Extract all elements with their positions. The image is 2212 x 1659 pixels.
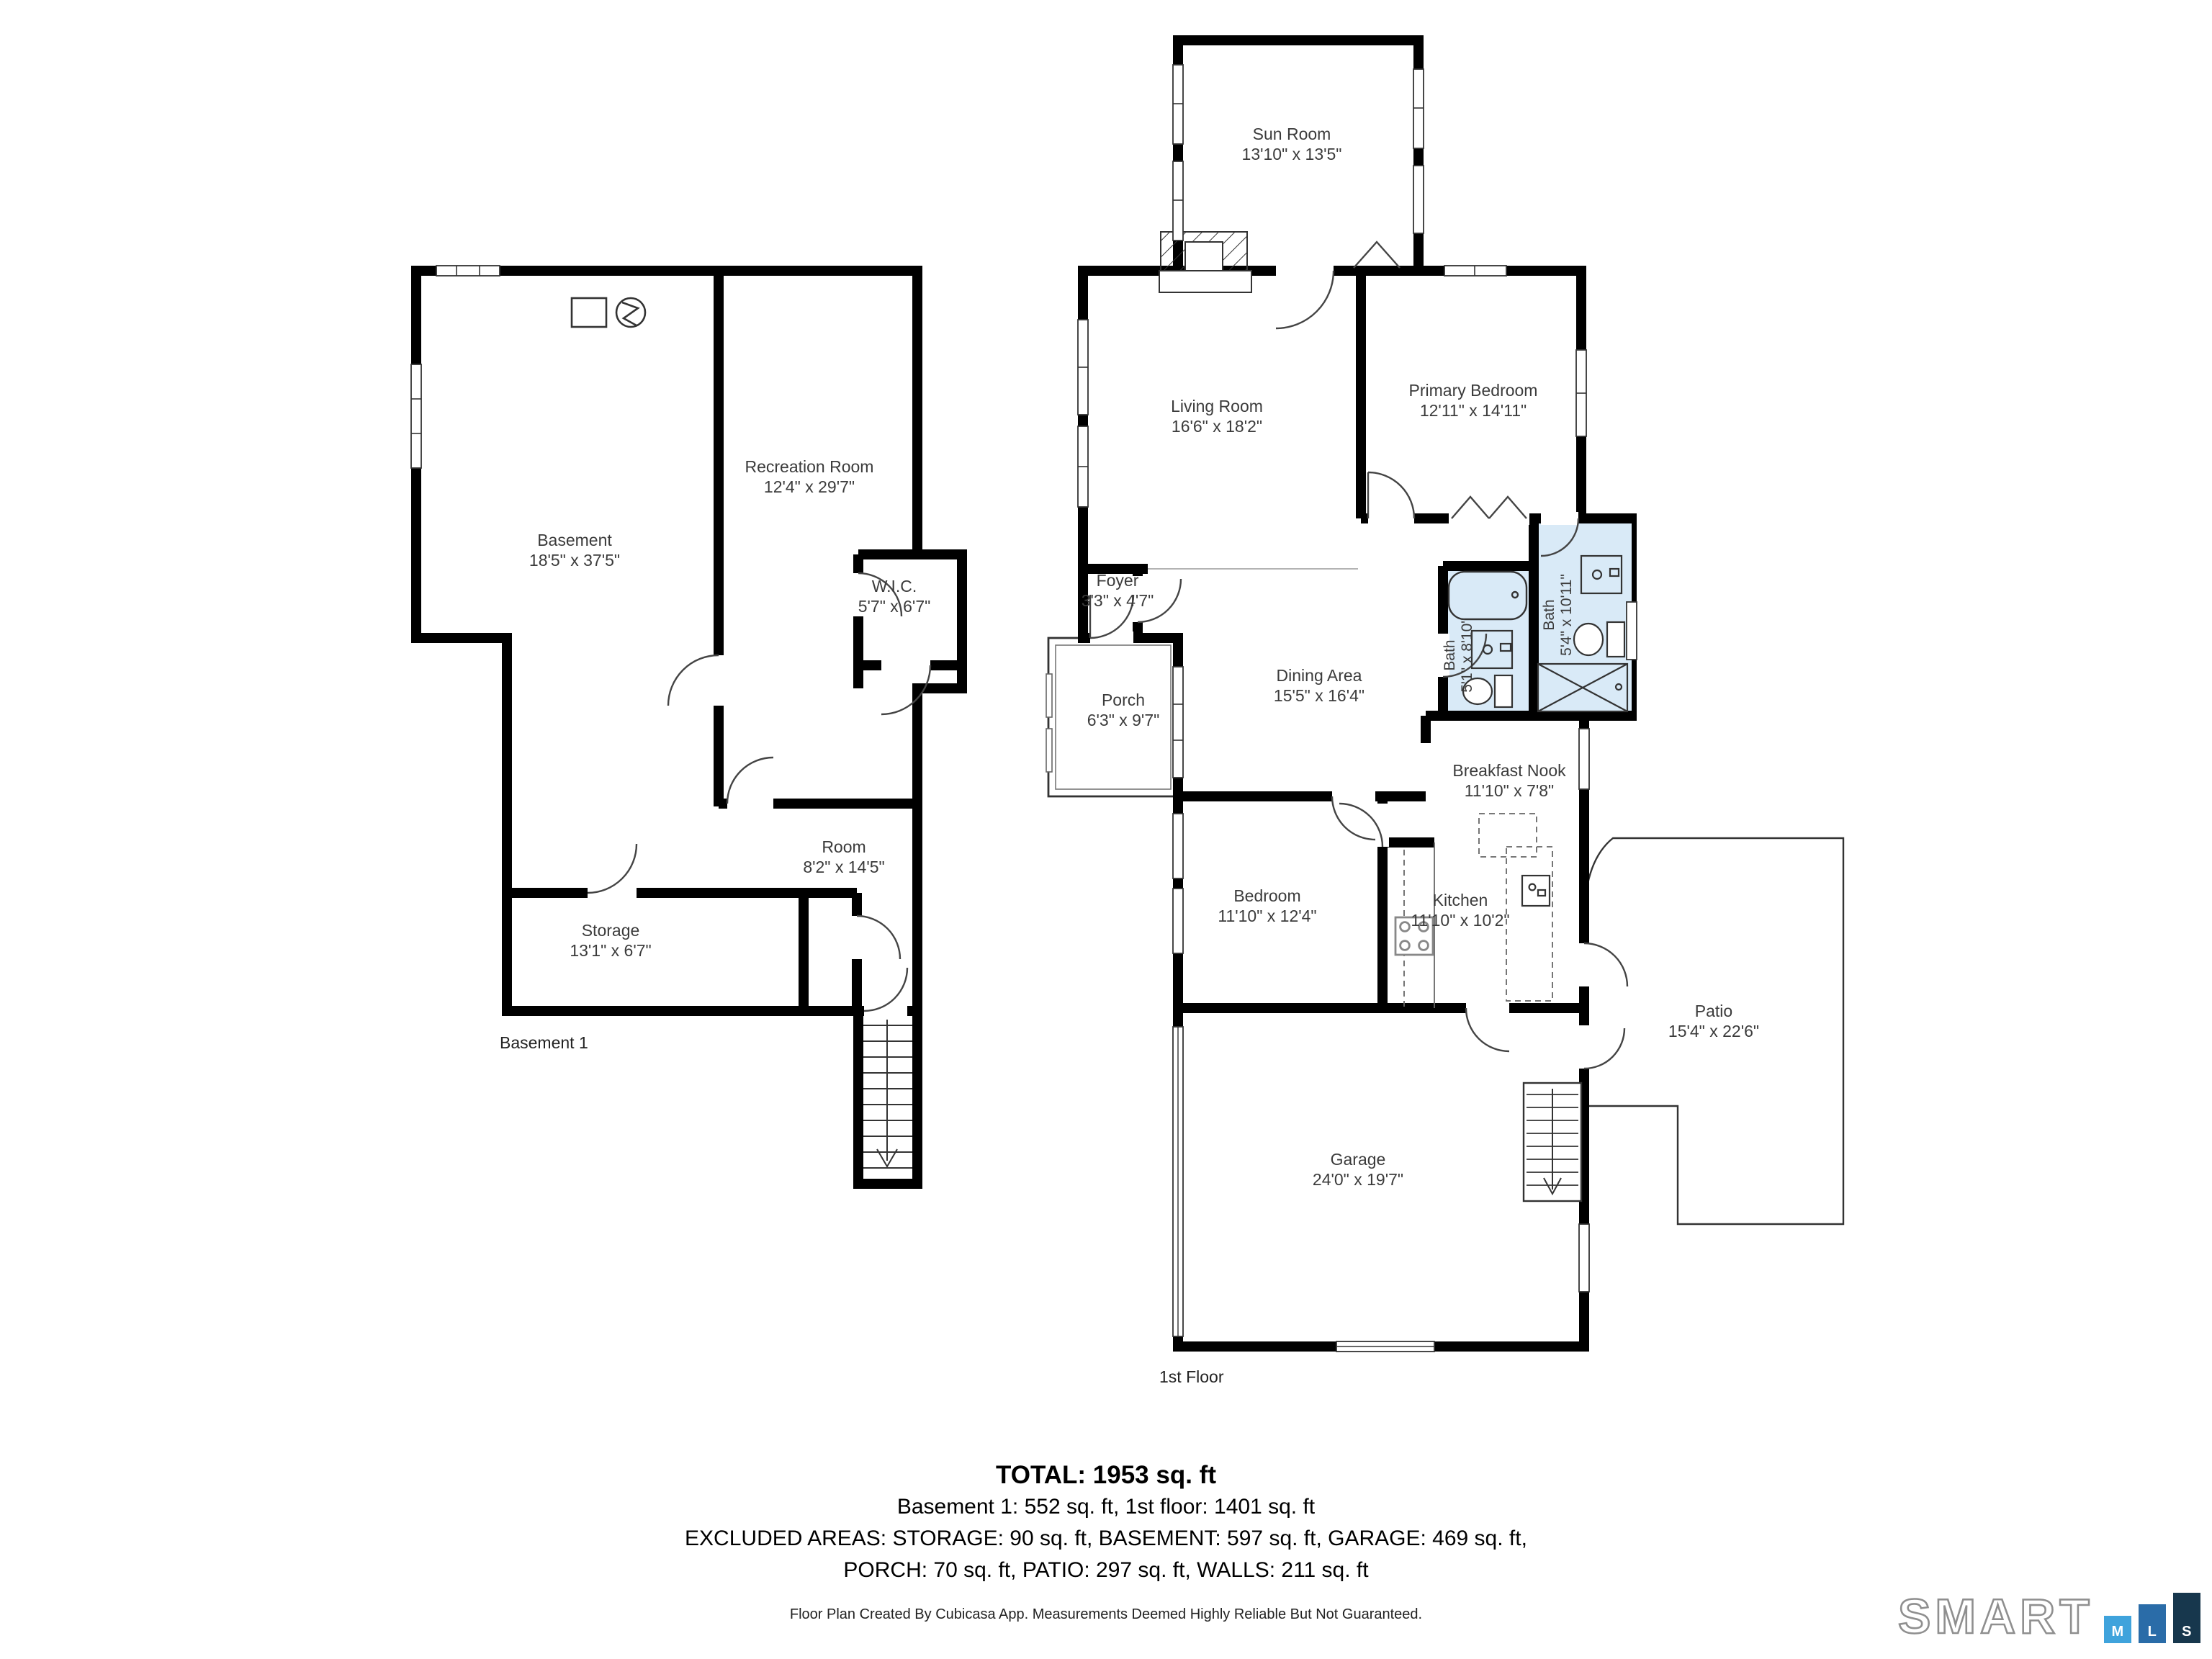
room-label-primary-bedroom: Primary Bedroom 12'11" x 14'11" <box>1358 383 1588 422</box>
room-dims: 5'4" x 10'11" <box>1558 546 1575 684</box>
mls-logo-bars: M L S <box>2104 1593 2200 1643</box>
smartmls-logo: SMART M L S <box>1898 1591 2200 1643</box>
room-dims: 3'3" x 4'7" <box>1046 593 1190 612</box>
room-label-bedroom: Bedroom 11'10" x 12'4" <box>1152 889 1382 927</box>
room-dims: 13'10" x 13'5" <box>1177 146 1407 166</box>
room-label-foyer: Foyer 3'3" x 4'7" <box>1046 573 1190 612</box>
room-label-bath-1: Bath 5'1" x 8'10" <box>1442 590 1476 720</box>
room-label-porch: Porch 6'3" x 9'7" <box>1037 693 1210 732</box>
room-dims: 15'5" x 16'4" <box>1204 688 1434 707</box>
floor-label-basement-1: Basement 1 <box>500 1035 588 1053</box>
room-name: Room <box>772 840 916 859</box>
room-dims: 15'4" x 22'6" <box>1599 1023 1829 1043</box>
room-dims: 11'10" x 10'2" <box>1374 912 1547 932</box>
room-dims: 8'2" x 14'5" <box>772 859 916 878</box>
room-label-patio: Patio 15'4" x 22'6" <box>1599 1004 1829 1043</box>
floor-areas-text: Basement 1: 552 sq. ft, 1st floor: 1401 … <box>0 1495 2212 1519</box>
room-name: Primary Bedroom <box>1358 383 1588 403</box>
room-name: Living Room <box>1102 399 1332 418</box>
floor-plan-page: Basement 18'5" x 37'5" Recreation Room 1… <box>0 0 2212 1659</box>
room-label-kitchen: Kitchen 11'10" x 10'2" <box>1374 893 1547 932</box>
room-label-sun-room: Sun Room 13'10" x 13'5" <box>1177 127 1407 166</box>
room-label-breakfast-nook: Breakfast Nook 11'10" x 7'8" <box>1394 763 1624 802</box>
room-name: Garage <box>1243 1152 1473 1172</box>
room-label-garage: Garage 24'0" x 19'7" <box>1243 1152 1473 1191</box>
room-name: Sun Room <box>1177 127 1407 146</box>
room-name: Dining Area <box>1204 668 1434 688</box>
room-name: Bath <box>1442 590 1459 720</box>
room-name: Patio <box>1599 1004 1829 1023</box>
room-dims: 12'4" x 29'7" <box>694 479 925 498</box>
mls-bar-s: S <box>2173 1593 2200 1643</box>
room-label-bath-2: Bath 5'4" x 10'11" <box>1541 546 1575 684</box>
room-label-dining-area: Dining Area 15'5" x 16'4" <box>1204 668 1434 707</box>
room-dims: 24'0" x 19'7" <box>1243 1172 1473 1191</box>
room-label-storage: Storage 13'1" x 6'7" <box>495 923 726 962</box>
excluded-areas-text-1: EXCLUDED AREAS: STORAGE: 90 sq. ft, BASE… <box>0 1527 2212 1551</box>
room-label-basement: Basement 18'5" x 37'5" <box>459 533 690 572</box>
stairs-icon-first-floor <box>1524 1083 1581 1201</box>
room-dims: 5'7" x 6'7" <box>822 598 966 618</box>
room-dims: 18'5" x 37'5" <box>459 552 690 572</box>
room-dims: 13'1" x 6'7" <box>495 943 726 962</box>
room-dims: 16'6" x 18'2" <box>1102 418 1332 438</box>
floor-plan-drawing <box>0 0 2212 1659</box>
room-name: Porch <box>1037 693 1210 712</box>
room-name: W.I.C. <box>822 579 966 598</box>
mls-bar-m: M <box>2104 1616 2131 1643</box>
room-dims: 11'10" x 12'4" <box>1152 908 1382 927</box>
room-name: Kitchen <box>1374 893 1547 912</box>
room-label-wic: W.I.C. 5'7" x 6'7" <box>822 579 966 618</box>
room-dims: 12'11" x 14'11" <box>1358 403 1588 422</box>
room-label-room: Room 8'2" x 14'5" <box>772 840 916 878</box>
excluded-areas-text-2: PORCH: 70 sq. ft, PATIO: 297 sq. ft, WAL… <box>0 1558 2212 1583</box>
room-name: Recreation Room <box>694 459 925 479</box>
room-label-recreation-room: Recreation Room 12'4" x 29'7" <box>694 459 925 498</box>
disclaimer-text: Floor Plan Created By Cubicasa App. Meas… <box>0 1607 2212 1623</box>
room-name: Breakfast Nook <box>1394 763 1624 783</box>
smart-logo-word: SMART <box>1898 1591 2094 1643</box>
room-dims: 11'10" x 7'8" <box>1394 783 1624 802</box>
room-label-living-room: Living Room 16'6" x 18'2" <box>1102 399 1332 438</box>
basement-plan <box>411 266 962 1184</box>
room-name: Bedroom <box>1152 889 1382 908</box>
room-name: Basement <box>459 533 690 552</box>
room-dims: 5'1" x 8'10" <box>1459 590 1476 720</box>
room-name: Storage <box>495 923 726 943</box>
room-name: Foyer <box>1046 573 1190 593</box>
floor-label-1st-floor: 1st Floor <box>1159 1370 1224 1387</box>
room-name: Bath <box>1541 546 1558 684</box>
room-dims: 6'3" x 9'7" <box>1037 712 1210 732</box>
total-area-text: TOTAL: 1953 sq. ft <box>0 1460 2212 1491</box>
mls-bar-l: L <box>2139 1604 2166 1643</box>
